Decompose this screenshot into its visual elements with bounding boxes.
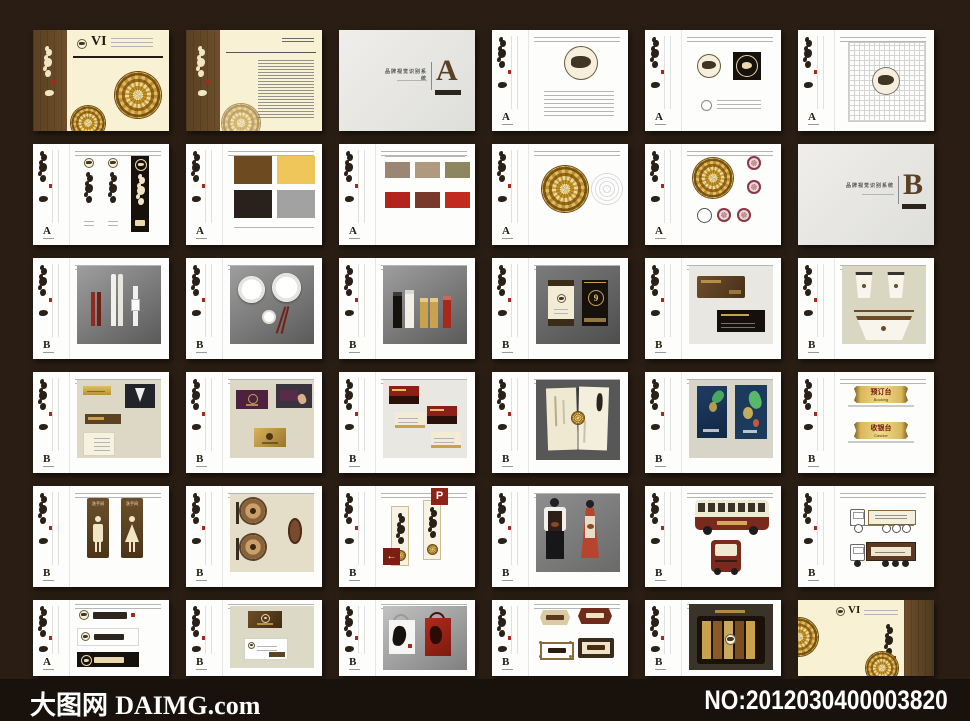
thumb-section-a-divider: 品牌视觉识别系统 A: [339, 30, 475, 131]
parking-sign: P: [431, 488, 448, 505]
restroom-label: 洗手间: [87, 501, 109, 507]
page-sidebar: A: [339, 144, 376, 245]
thumb-cover-back: VI: [798, 600, 934, 676]
page-sidebar: A: [492, 30, 529, 131]
section-letter: A: [502, 111, 513, 125]
business-card-white: [244, 638, 288, 660]
divider-rule: [431, 62, 432, 90]
section-letter: B: [808, 453, 819, 467]
vip-card-purple: [236, 390, 268, 409]
foreword-paragraph-lines: [258, 60, 314, 118]
color-swatch: [277, 156, 315, 184]
shopping-bag-red: [425, 618, 451, 656]
member-card-brown: [697, 276, 745, 298]
mandala-graphic: [222, 104, 260, 131]
business-card-brown: [248, 611, 282, 628]
divider-bar: [435, 90, 461, 95]
photo-area: [689, 266, 773, 344]
page-header-lines: [381, 491, 467, 498]
page-header-lines: [687, 35, 773, 42]
menu-emblem: [572, 412, 584, 424]
cover-wood-band: [33, 30, 67, 131]
photo-area: [230, 606, 314, 668]
page-header-lines: [840, 35, 926, 42]
page-sidebar: A: [492, 144, 529, 245]
photo-area: [536, 494, 620, 572]
page-sidebar: B: [339, 372, 376, 473]
mandala-graphic: [693, 158, 733, 198]
thumb-hanging-plaques: B: [492, 600, 628, 676]
color-swatch: [277, 190, 315, 218]
plaque-cashier-en: Cashier: [854, 433, 908, 438]
rule: [73, 56, 163, 58]
preview-grid: VI 品牌视觉识别系统 A A: [33, 30, 934, 676]
thumb-posters: B: [645, 372, 781, 473]
page-sidebar: A: [645, 30, 682, 131]
divider-letter: A: [436, 54, 458, 88]
truck-cab-outline: [850, 544, 865, 561]
round-wall-sign: [241, 535, 265, 559]
thumb-cover-front: VI: [33, 30, 169, 131]
photo-area: [77, 266, 161, 344]
color-swatch: [445, 192, 470, 208]
seal-stamp: [205, 80, 209, 84]
photo-area: [383, 266, 467, 344]
cover-subtitle-lines: [111, 38, 153, 47]
thumb-auxiliary-colors: A: [339, 144, 475, 245]
vi-title: VI: [91, 34, 107, 50]
mandala-graphic: [798, 618, 818, 656]
vip-card-red: [389, 386, 419, 404]
photo-area: [230, 494, 314, 572]
page-sidebar: B: [339, 258, 376, 359]
seal-stamp: [52, 80, 56, 84]
page-sidebar: B: [186, 600, 223, 676]
door-number: 9: [588, 290, 604, 306]
page-sidebar: A: [33, 600, 70, 676]
bowl: [856, 316, 912, 340]
round-wall-sign: [241, 499, 265, 523]
restroom-sign-female: 洗手间: [121, 498, 143, 558]
foreword-heading-lines: [282, 38, 314, 42]
section-letter: B: [655, 567, 666, 581]
brand-roundel-logo: [872, 67, 900, 95]
page-sidebar: B: [33, 372, 70, 473]
color-swatch: [385, 162, 410, 178]
photo-area: [230, 266, 314, 344]
arrow-sign: ←: [383, 548, 400, 565]
paper-cup: [854, 272, 874, 298]
page-header-lines: [75, 491, 161, 498]
site-name-en: DAIMG.com: [115, 691, 260, 720]
section-letter: B: [502, 453, 513, 467]
thumb-vertical-lockups: A: [33, 144, 169, 245]
page-sidebar: B: [186, 372, 223, 473]
section-letter: B: [349, 656, 360, 670]
truck-container: [866, 542, 916, 561]
cover-subtitle-lines: [864, 607, 898, 615]
page-sidebar: A: [33, 144, 70, 245]
site-logo: 大图网 DAIMG.com: [30, 685, 260, 721]
section-letter: A: [655, 111, 666, 125]
thumb-paper-cups: B: [798, 258, 934, 359]
thumb-logo-presentation: A: [492, 30, 628, 131]
lockup-vertical-dark: [131, 156, 149, 232]
divider-title: 品牌视觉识别系统: [846, 182, 894, 189]
thumb-logo-reverse: A: [645, 30, 781, 131]
mooncake-gift-box: [697, 616, 765, 664]
mandala-outline-graphic: [590, 172, 624, 206]
page-header-lines: [534, 149, 620, 156]
page-sidebar: A: [186, 144, 223, 245]
section-letter: B: [655, 656, 666, 670]
page-sidebar: B: [798, 372, 835, 473]
divider-subtitle-line: [397, 78, 427, 81]
rosette-graphic: [747, 156, 761, 170]
section-letter: A: [43, 656, 54, 670]
hanging-banner: [423, 500, 441, 560]
thumb-bus-livery: B: [645, 486, 781, 587]
brand-roundel-logo: [79, 610, 89, 620]
section-letter: A: [196, 225, 207, 239]
section-letter: B: [502, 656, 513, 670]
framed-plaque: [540, 642, 574, 660]
watermark-footer: 大图网 DAIMG.com NO:2012030400003820: [0, 679, 970, 721]
paper-cup: [886, 272, 906, 298]
thumb-chopsticks-packaging: B: [33, 258, 169, 359]
card-hand-photo: [276, 384, 312, 408]
thumb-business-cards: B: [186, 600, 322, 676]
shelf-line: [848, 405, 914, 407]
section-letter: B: [349, 567, 360, 581]
page-header-lines: [687, 491, 773, 498]
page-header-lines: [687, 149, 773, 156]
brand-roundel-logo: [564, 46, 598, 80]
image-number: NO:2012030400003820: [705, 685, 948, 716]
page-header-lines: [228, 149, 314, 156]
truck-banner: [868, 510, 916, 525]
bus-front-view: [711, 540, 741, 572]
brand-roundel-logo: [697, 54, 721, 78]
chopsticks: [854, 310, 914, 312]
section-letter: A: [808, 111, 819, 125]
plaque-booking-cn: 预订台: [854, 387, 908, 397]
photo-area: [842, 266, 926, 344]
wood-plaque: [540, 610, 570, 625]
section-letter: B: [43, 339, 54, 353]
shopping-bag-white: [389, 620, 415, 654]
circle-outline-graphic: [697, 208, 712, 223]
thumb-foreword: [186, 30, 322, 131]
brand-calligraphy-mark: [886, 624, 890, 629]
plaque-cashier: 收银台 Cashier: [854, 422, 908, 439]
vip-card-red: [427, 406, 457, 424]
photo-area: [689, 380, 773, 458]
restroom-sign-male: 洗手间: [87, 498, 109, 558]
mandala-graphic: [71, 106, 105, 131]
page-sidebar: B: [798, 258, 835, 359]
page-sidebar: B: [186, 258, 223, 359]
thumb-door-hangers: B 9: [492, 258, 628, 359]
swatch-labels: [385, 154, 465, 157]
suit-photo: [125, 384, 155, 408]
bus-wheel: [703, 526, 712, 535]
page-sidebar: B: [645, 600, 682, 676]
brand-roundel-logo: [77, 39, 87, 49]
color-swatch: [385, 192, 410, 208]
lockup-text: [93, 612, 127, 619]
page-sidebar: B: [339, 486, 376, 587]
brand-roundel-logo: [836, 607, 845, 616]
logo-dark-tile: [733, 52, 761, 80]
rosette-graphic: [737, 208, 751, 222]
section-letter: A: [502, 225, 513, 239]
lockup-dark-bar: [77, 652, 139, 667]
framed-plaque-dark: [578, 638, 614, 658]
section-letter: B: [196, 656, 207, 670]
mandala-graphic: [866, 652, 898, 676]
photo-area: [230, 380, 314, 458]
cover-wood-band: [904, 600, 934, 676]
male-staff: [550, 498, 559, 507]
thumb-section-b-divider: 品牌视觉识别系统 B: [798, 144, 934, 245]
section-letter: B: [655, 453, 666, 467]
section-letter: B: [502, 567, 513, 581]
rosette-graphic: [717, 208, 731, 222]
photo-area: 9: [536, 266, 620, 344]
thumb-standard-colors: A: [186, 144, 322, 245]
divider-rule: [898, 176, 899, 204]
stamp-icon: [701, 100, 712, 111]
divider-bar: [902, 204, 926, 209]
section-letter: A: [655, 225, 666, 239]
thumb-menu-spread: B: [492, 372, 628, 473]
photo-area: [383, 380, 467, 458]
plaque-cashier-cn: 收银台: [854, 423, 908, 433]
photo-area: [689, 604, 773, 670]
page-sidebar: B: [645, 486, 682, 587]
thumb-staff-badges: B: [33, 372, 169, 473]
section-letter: B: [655, 339, 666, 353]
cover-wood-band: [186, 30, 220, 131]
photo-area: [383, 606, 467, 670]
door-card-light: [548, 280, 574, 326]
page-sidebar: B: [645, 372, 682, 473]
vip-card-back: [431, 432, 461, 448]
stock-preview-image: VI 品牌视觉识别系统 A A: [0, 0, 970, 721]
page-sidebar: B: [645, 258, 682, 359]
oval-sign: [288, 518, 302, 544]
page-sidebar: B: [33, 258, 70, 359]
page-header-lines: [534, 35, 620, 42]
thumb-horizontal-lockups: A: [33, 600, 169, 676]
badge-bar: [85, 414, 121, 424]
thumb-tableware: B: [186, 258, 322, 359]
color-swatch: [415, 192, 440, 208]
female-staff: [586, 500, 594, 508]
lockup-boxed: [77, 628, 139, 646]
section-letter: A: [43, 225, 54, 239]
shelf-line: [848, 441, 914, 443]
plaque-booking: 预订台 Booking: [854, 386, 908, 403]
thumb-auxiliary-pattern: A: [492, 144, 628, 245]
page-header-lines: [840, 377, 926, 384]
section-letter: B: [196, 339, 207, 353]
restroom-label: 洗手间: [121, 501, 143, 507]
section-letter: B: [43, 453, 54, 467]
lockup-vertical: [81, 158, 97, 230]
page-header-lines: [75, 149, 161, 156]
vi-title: VI: [848, 604, 860, 616]
thumb-desk-plaques: B 预订台 Booking 收银台 Cashier: [798, 372, 934, 473]
page-sidebar: B: [492, 486, 529, 587]
thumb-gift-box: B: [645, 600, 781, 676]
thumb-directional-signs: B ← P: [339, 486, 475, 587]
thumb-vip-cards-purple: B: [186, 372, 322, 473]
vip-card-back: [395, 412, 425, 428]
member-card-black: [717, 310, 765, 332]
name-badge: [83, 386, 111, 395]
poster: [735, 385, 767, 439]
thumb-logo-grid: A: [798, 30, 934, 131]
color-swatch: [445, 162, 470, 178]
poster: [697, 386, 727, 438]
section-letter: B: [196, 453, 207, 467]
thumb-restroom-signs: B 洗手间 洗手间: [33, 486, 169, 587]
page-sidebar: A: [798, 30, 835, 131]
page-sidebar: B: [492, 600, 529, 676]
thumb-shopping-bags: B: [339, 600, 475, 676]
page-header-lines: [75, 604, 161, 609]
color-swatch: [415, 162, 440, 178]
page-sidebar: A: [645, 144, 682, 245]
section-letter: B: [808, 339, 819, 353]
section-letter: B: [349, 453, 360, 467]
thumb-pattern-set: A: [645, 144, 781, 245]
wood-plaque-dark: [578, 608, 612, 624]
caption-lines: [717, 100, 761, 109]
lockup-vertical: [105, 158, 121, 230]
photo-area: [77, 380, 161, 458]
mandala-graphic: [542, 166, 588, 212]
thumb-truck-livery: B: [798, 486, 934, 587]
section-letter: B: [43, 567, 54, 581]
thumb-member-cards: B: [645, 258, 781, 359]
color-swatch: [234, 156, 272, 184]
thumb-wall-signs: B: [186, 486, 322, 587]
page-header-lines: [840, 491, 926, 498]
color-swatch: [234, 190, 272, 218]
section-letter: B: [808, 567, 819, 581]
door-card-dark: 9: [582, 280, 608, 326]
divider-letter: B: [903, 168, 923, 202]
section-letter: B: [196, 567, 207, 581]
divider-subtitle-line: [862, 192, 894, 195]
rosette-graphic: [747, 180, 761, 194]
vip-card-gold: [254, 428, 286, 447]
mandala-graphic: [115, 72, 161, 118]
section-letter: A: [349, 225, 360, 239]
rule: [226, 52, 316, 53]
page-sidebar: B: [339, 600, 376, 676]
page-sidebar: B: [492, 258, 529, 359]
page-sidebar: B: [186, 486, 223, 587]
thumb-vip-cards-red: B: [339, 372, 475, 473]
thumb-uniforms: B: [492, 486, 628, 587]
photo-area: [536, 380, 620, 460]
plaque-booking-en: Booking: [854, 397, 908, 402]
page-sidebar: B: [492, 372, 529, 473]
table-tent: [83, 432, 115, 456]
thumb-bottle-packaging: B: [339, 258, 475, 359]
body-text-lines: [544, 90, 614, 116]
section-letter: B: [349, 339, 360, 353]
bus-wheel: [749, 526, 758, 535]
swatch-labels: [234, 224, 314, 228]
page-sidebar: B: [33, 486, 70, 587]
section-letter: B: [502, 339, 513, 353]
page-sidebar: B: [798, 486, 835, 587]
site-name-cn: 大图网: [30, 690, 108, 720]
